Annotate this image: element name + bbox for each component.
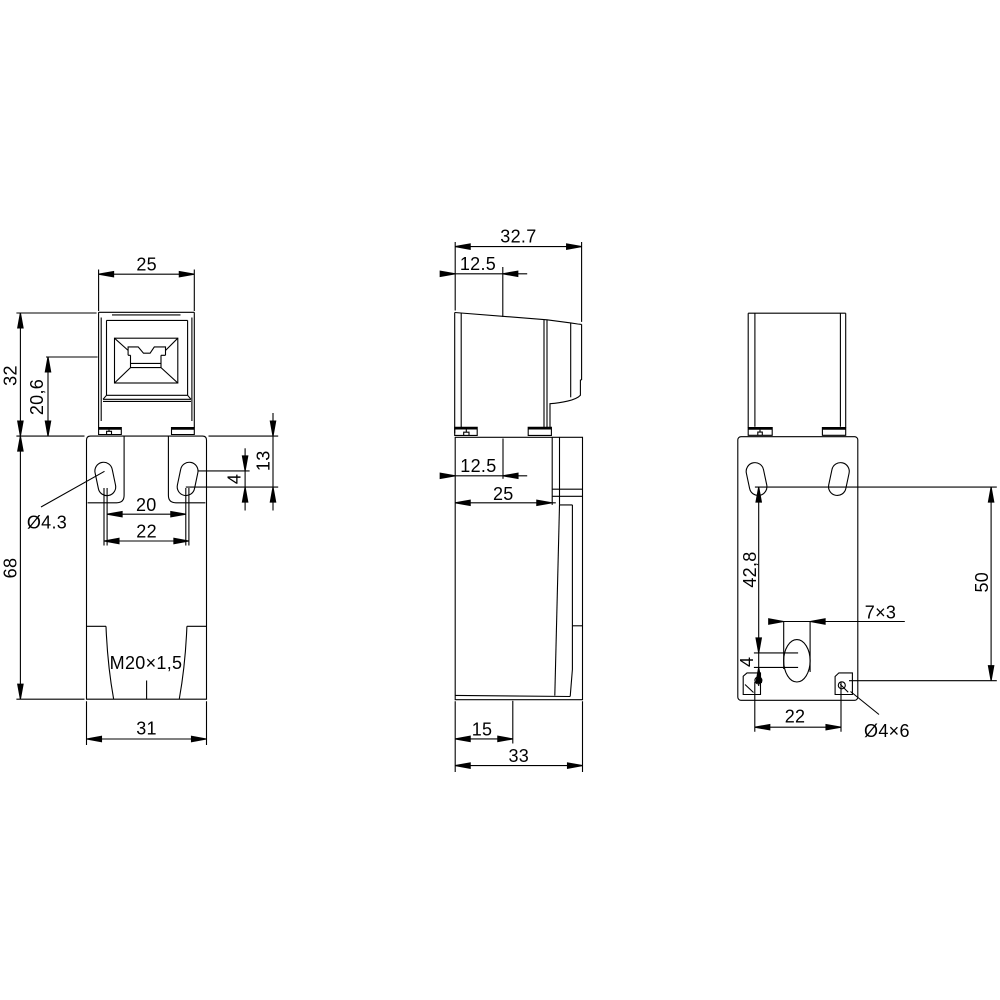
svg-text:20,6: 20,6 [27, 379, 47, 415]
svg-text:42,8: 42,8 [740, 551, 760, 587]
svg-text:50: 50 [972, 572, 992, 593]
svg-text:20: 20 [136, 495, 157, 515]
svg-text:Ø4×6: Ø4×6 [864, 721, 910, 741]
svg-text:25: 25 [136, 254, 157, 274]
svg-text:31: 31 [136, 719, 157, 739]
svg-text:25: 25 [493, 484, 514, 504]
svg-text:32.7: 32.7 [500, 226, 536, 246]
svg-text:7×3: 7×3 [865, 602, 896, 622]
svg-text:15: 15 [472, 720, 493, 740]
svg-text:13: 13 [254, 450, 274, 471]
svg-text:4: 4 [737, 657, 757, 667]
svg-text:12.5: 12.5 [460, 456, 496, 476]
svg-text:22: 22 [136, 522, 157, 542]
svg-text:32: 32 [1, 365, 21, 386]
svg-text:22: 22 [785, 706, 806, 726]
svg-text:33: 33 [508, 746, 529, 766]
svg-text:Ø4.3: Ø4.3 [27, 512, 67, 532]
svg-text:12.5: 12.5 [460, 254, 496, 274]
svg-text:M20×1,5: M20×1,5 [110, 653, 183, 673]
svg-text:4: 4 [225, 474, 245, 484]
svg-text:68: 68 [1, 558, 21, 579]
